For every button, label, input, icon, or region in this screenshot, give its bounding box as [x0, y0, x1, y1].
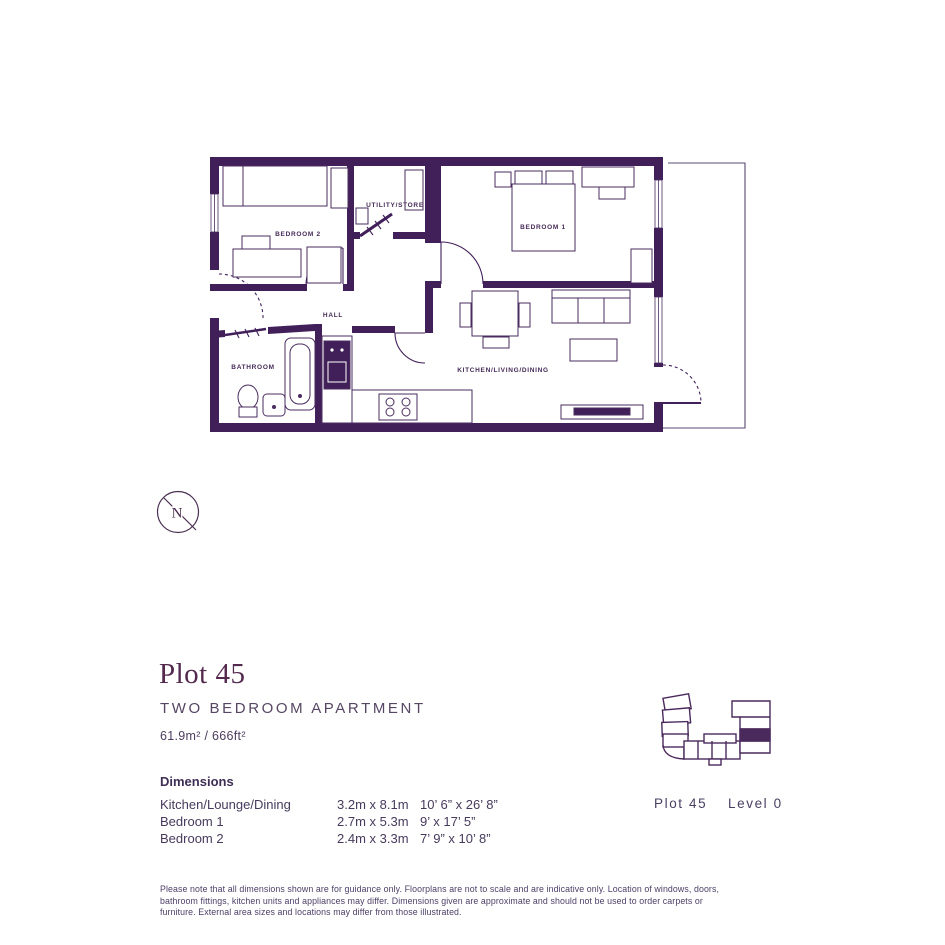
utility-shelf — [356, 208, 368, 224]
desk1 — [582, 167, 634, 187]
room-label-kitchen: KITCHEN/LIVING/DINING — [457, 367, 549, 374]
chair2 — [242, 236, 270, 249]
dim-imperial: 10’ 6” x 26’ 8” — [420, 796, 580, 813]
toilet — [238, 385, 258, 409]
dim-name: Bedroom 1 — [160, 813, 337, 830]
compass-icon: N — [150, 484, 210, 544]
dining-chair-left — [460, 303, 471, 327]
building-locator-icon — [652, 693, 777, 773]
dim-name: Bedroom 2 — [160, 830, 337, 847]
highlighted-plot — [740, 729, 770, 741]
apartment-type-label: TWO BEDROOM APARTMENT — [160, 700, 426, 717]
bedside1 — [495, 172, 511, 187]
entrance-door-arc — [219, 274, 263, 318]
room-label-bathroom: BATHROOM — [231, 364, 274, 371]
pillow1a — [515, 171, 542, 184]
coffee-table — [570, 339, 617, 361]
pillow1b — [546, 171, 573, 184]
dimensions-heading: Dimensions — [160, 774, 580, 789]
bed1 — [512, 184, 575, 251]
floorplan-page: { "floorplan": { "rooms": [ {"id": "bedr… — [0, 0, 945, 945]
desk1-return — [599, 187, 625, 199]
floorplan-svg: BEDROOM 2 UTILITY/STORE BEDROOM 1 HALL B… — [195, 150, 755, 440]
compass-north-label: N — [172, 506, 183, 522]
dim-imperial: 9’ x 17’ 5” — [420, 813, 580, 830]
room-label-bedroom2: BEDROOM 2 — [275, 231, 321, 238]
apartment-area: 61.9m² / 666ft² — [160, 729, 246, 743]
dim-imperial: 7’ 9” x 10’ 8” — [420, 830, 580, 847]
desk2 — [233, 249, 301, 277]
page-title: Plot 45 — [159, 658, 246, 691]
wardrobe1 — [631, 249, 652, 283]
bedroom1-door-arc — [441, 242, 483, 284]
table-row: Bedroom 1 2.7m x 5.3m 9’ x 17’ 5” — [160, 813, 580, 830]
tv — [574, 408, 630, 415]
drawer-unit2 — [307, 247, 341, 283]
kitchen-door-arc — [395, 333, 425, 363]
table-row: Kitchen/Lounge/Dining 3.2m x 8.1m 10’ 6”… — [160, 796, 580, 813]
dim-metric: 3.2m x 8.1m — [337, 796, 420, 813]
floorplan: BEDROOM 2 UTILITY/STORE BEDROOM 1 HALL B… — [195, 150, 755, 445]
building-locator — [652, 693, 777, 778]
dim-metric: 2.7m x 5.3m — [337, 813, 420, 830]
dim-name: Kitchen/Lounge/Dining — [160, 796, 337, 813]
disclaimer-text: Please note that all dimensions shown ar… — [160, 884, 720, 919]
toilet-cistern — [239, 407, 257, 417]
wardrobe2 — [331, 168, 348, 208]
external-area-outline — [663, 163, 745, 428]
table-row: Bedroom 2 2.4m x 3.3m 7’ 9” x 10’ 8” — [160, 830, 580, 847]
room-label-bedroom1: BEDROOM 1 — [520, 224, 566, 231]
bed2 — [223, 166, 327, 206]
hob — [379, 394, 417, 420]
locator-plot-label: Plot 45 — [654, 796, 707, 811]
dining-chair-bottom — [483, 337, 509, 348]
dimensions-table: Dimensions Kitchen/Lounge/Dining 3.2m x … — [160, 774, 580, 847]
room-label-hall: HALL — [323, 312, 343, 319]
patio-door-arc — [663, 365, 701, 403]
dining-table — [472, 291, 518, 336]
locator-level-label: Level 0 — [728, 796, 783, 811]
dining-chair-right — [519, 303, 530, 327]
dim-metric: 2.4m x 3.3m — [337, 830, 420, 847]
sofa — [552, 290, 630, 323]
room-label-utility: UTILITY/STORE — [366, 202, 424, 209]
compass: N — [150, 484, 210, 549]
